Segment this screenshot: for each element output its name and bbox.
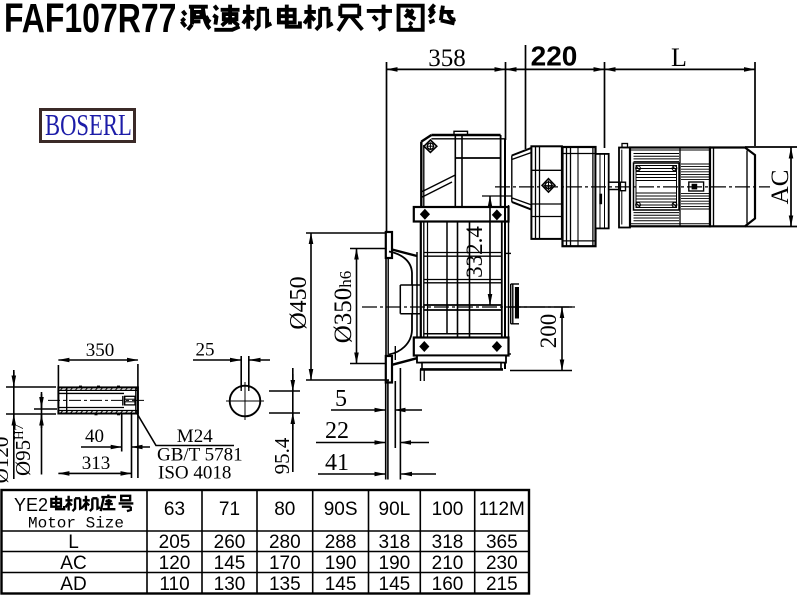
svg-text:Ø450: Ø450 xyxy=(286,276,312,329)
svg-text:135: 135 xyxy=(269,574,301,595)
svg-text:220: 220 xyxy=(531,41,578,72)
svg-text:280: 280 xyxy=(269,532,301,553)
svg-text:365: 365 xyxy=(486,532,518,553)
svg-text:145: 145 xyxy=(325,574,357,595)
svg-text:ISO 4018: ISO 4018 xyxy=(158,463,231,484)
svg-text:313: 313 xyxy=(82,453,111,474)
svg-text:AC: AC xyxy=(60,553,86,574)
svg-text:YE2: YE2 xyxy=(14,495,48,515)
svg-text:110: 110 xyxy=(159,574,189,595)
svg-text:288: 288 xyxy=(325,532,357,553)
svg-text:112M: 112M xyxy=(479,499,525,520)
svg-text:Ø350h6: Ø350h6 xyxy=(330,271,357,344)
svg-text:200: 200 xyxy=(536,314,561,349)
svg-text:L: L xyxy=(671,43,687,72)
svg-text:Motor Size: Motor Size xyxy=(28,515,124,533)
svg-text:80: 80 xyxy=(274,499,295,520)
svg-text:41: 41 xyxy=(325,450,349,476)
svg-text:190: 190 xyxy=(379,553,411,574)
svg-text:350: 350 xyxy=(86,340,115,361)
svg-text:Ø95H7: Ø95H7 xyxy=(11,423,35,476)
svg-text:260: 260 xyxy=(214,532,246,553)
svg-text:90S: 90S xyxy=(324,499,358,520)
svg-text:22: 22 xyxy=(325,418,349,444)
svg-text:205: 205 xyxy=(159,532,191,553)
svg-text:230: 230 xyxy=(486,553,518,574)
svg-text:40: 40 xyxy=(85,426,104,447)
svg-text:190: 190 xyxy=(325,553,357,574)
svg-text:63: 63 xyxy=(164,499,185,520)
svg-text:318: 318 xyxy=(432,532,464,553)
svg-text:318: 318 xyxy=(379,532,411,553)
svg-text:95.4: 95.4 xyxy=(270,437,294,474)
svg-text:332.4: 332.4 xyxy=(462,226,487,278)
svg-text:AC: AC xyxy=(767,170,794,205)
svg-text:170: 170 xyxy=(269,553,301,574)
svg-text:71: 71 xyxy=(219,499,240,520)
svg-text:210: 210 xyxy=(432,553,464,574)
svg-text:120: 120 xyxy=(159,553,191,574)
svg-text:5: 5 xyxy=(335,386,347,412)
svg-text:215: 215 xyxy=(486,574,518,595)
svg-text:100: 100 xyxy=(432,499,464,520)
svg-text:160: 160 xyxy=(432,574,464,595)
svg-text:358: 358 xyxy=(428,45,466,72)
svg-text:130: 130 xyxy=(214,574,246,595)
svg-text:AD: AD xyxy=(60,574,86,595)
svg-text:90L: 90L xyxy=(379,499,411,520)
svg-text:145: 145 xyxy=(379,574,411,595)
svg-text:145: 145 xyxy=(214,553,246,574)
svg-text:25: 25 xyxy=(196,340,215,361)
svg-text:L: L xyxy=(68,532,79,553)
